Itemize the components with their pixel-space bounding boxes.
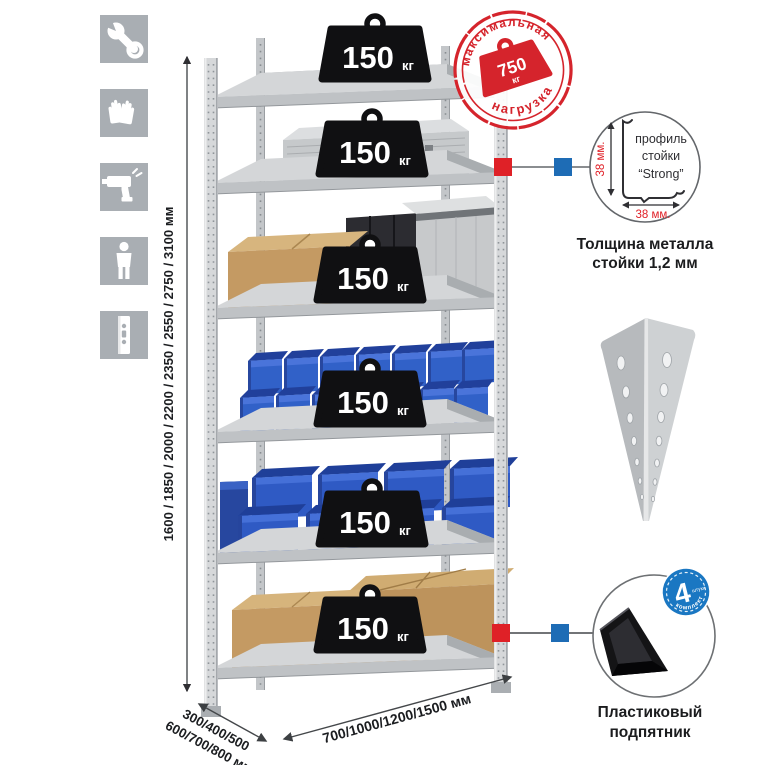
callout-bottom xyxy=(492,624,595,642)
depth-dimension: 300/400/500 600/700/800 мм xyxy=(163,704,266,765)
height-dimension-label: 1600 / 1850 / 2000 / 2200 / 2350 / 2550 … xyxy=(161,207,176,542)
badge-unit: кг xyxy=(397,629,410,644)
badge-value: 150 xyxy=(339,135,391,170)
infographic-canvas: 1600 / 1850 / 2000 / 2200 / 2350 / 2550 … xyxy=(0,0,765,765)
gloves-icon xyxy=(100,89,148,137)
width-dimension-line xyxy=(284,677,511,739)
profile-caption-1: Толщина металла xyxy=(577,236,714,253)
badge-value: 150 xyxy=(337,611,389,646)
badge-unit: кг xyxy=(399,153,412,168)
badge-value: 150 xyxy=(337,385,389,420)
wrench-icon xyxy=(100,15,148,63)
corner-post-image xyxy=(601,318,696,521)
width-dimension-label: 700/1000/1200/1500 мм xyxy=(321,690,473,746)
foot-detail-circle: 4 штуки в комплекте Пластиковый подпятни… xyxy=(593,563,715,741)
foot-caption-1: Пластиковый xyxy=(598,704,703,721)
profile-label-1: профиль xyxy=(635,132,687,146)
assembly-icons xyxy=(100,15,148,359)
profile-vertical-dim: 38 мм. xyxy=(595,142,607,177)
height-dimension: 1600 / 1850 / 2000 / 2200 / 2350 / 2550 … xyxy=(161,57,187,691)
callout-top xyxy=(494,158,590,176)
max-load-stamp: максимальная нагрузка 750 кг xyxy=(440,0,586,143)
load-badge: 150 кг xyxy=(322,16,428,79)
width-dimension: 700/1000/1200/1500 мм xyxy=(284,677,511,746)
badge-unit: кг xyxy=(399,523,412,538)
profile-caption-2: стойки 1,2 мм xyxy=(592,255,697,272)
callout-marker-red xyxy=(492,624,510,642)
badge-unit: кг xyxy=(397,403,410,418)
profile-label-3: “Strong” xyxy=(638,167,683,181)
product-infographic: 1600 / 1850 / 2000 / 2200 / 2350 / 2550 … xyxy=(0,0,765,765)
profile-label-2: стойки xyxy=(642,149,680,163)
badge-value: 150 xyxy=(337,261,389,296)
profile-detail-circle: 38 мм. 38 мм. профиль стойки “Strong” То… xyxy=(577,112,714,272)
callout-marker-blue xyxy=(554,158,572,176)
person-icon xyxy=(100,237,148,285)
callout-marker-blue xyxy=(551,624,569,642)
profile-horizontal-dim: 38 мм. xyxy=(636,209,671,221)
badge-value: 150 xyxy=(342,40,394,75)
callout-marker-red xyxy=(494,158,512,176)
load-badge: 150 кг xyxy=(319,111,425,174)
drill-icon xyxy=(100,163,148,211)
badge-value: 150 xyxy=(339,505,391,540)
badge-unit: кг xyxy=(402,58,415,73)
badge-unit: кг xyxy=(397,279,410,294)
foot-caption-2: подпятник xyxy=(609,724,690,741)
rack-upright-icon xyxy=(100,311,148,359)
